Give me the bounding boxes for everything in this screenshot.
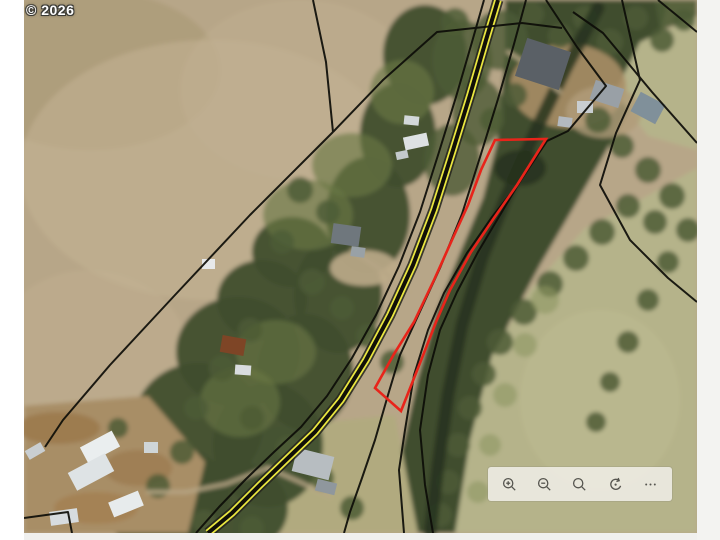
ellipsis-icon xyxy=(643,477,658,492)
map-toolbar xyxy=(488,467,672,501)
aerial-parcel-map[interactable] xyxy=(0,0,720,540)
magnifier-icon xyxy=(572,477,587,492)
map-viewport[interactable]: © 2026 xyxy=(0,0,720,540)
right-margin xyxy=(697,0,720,540)
zoom-full-extent-button[interactable] xyxy=(564,469,596,499)
zoom-out-button[interactable] xyxy=(529,469,561,499)
reset-rotation-button[interactable] xyxy=(599,469,631,499)
left-margin xyxy=(0,0,24,540)
map-imagery xyxy=(0,0,707,540)
zoom-in-button[interactable] xyxy=(494,469,526,499)
more-tools-button[interactable] xyxy=(634,469,666,499)
bottom-margin xyxy=(24,533,697,540)
magnifier-minus-icon xyxy=(537,477,552,492)
magnifier-plus-icon xyxy=(502,477,517,492)
rotate-dot-icon xyxy=(608,477,623,492)
